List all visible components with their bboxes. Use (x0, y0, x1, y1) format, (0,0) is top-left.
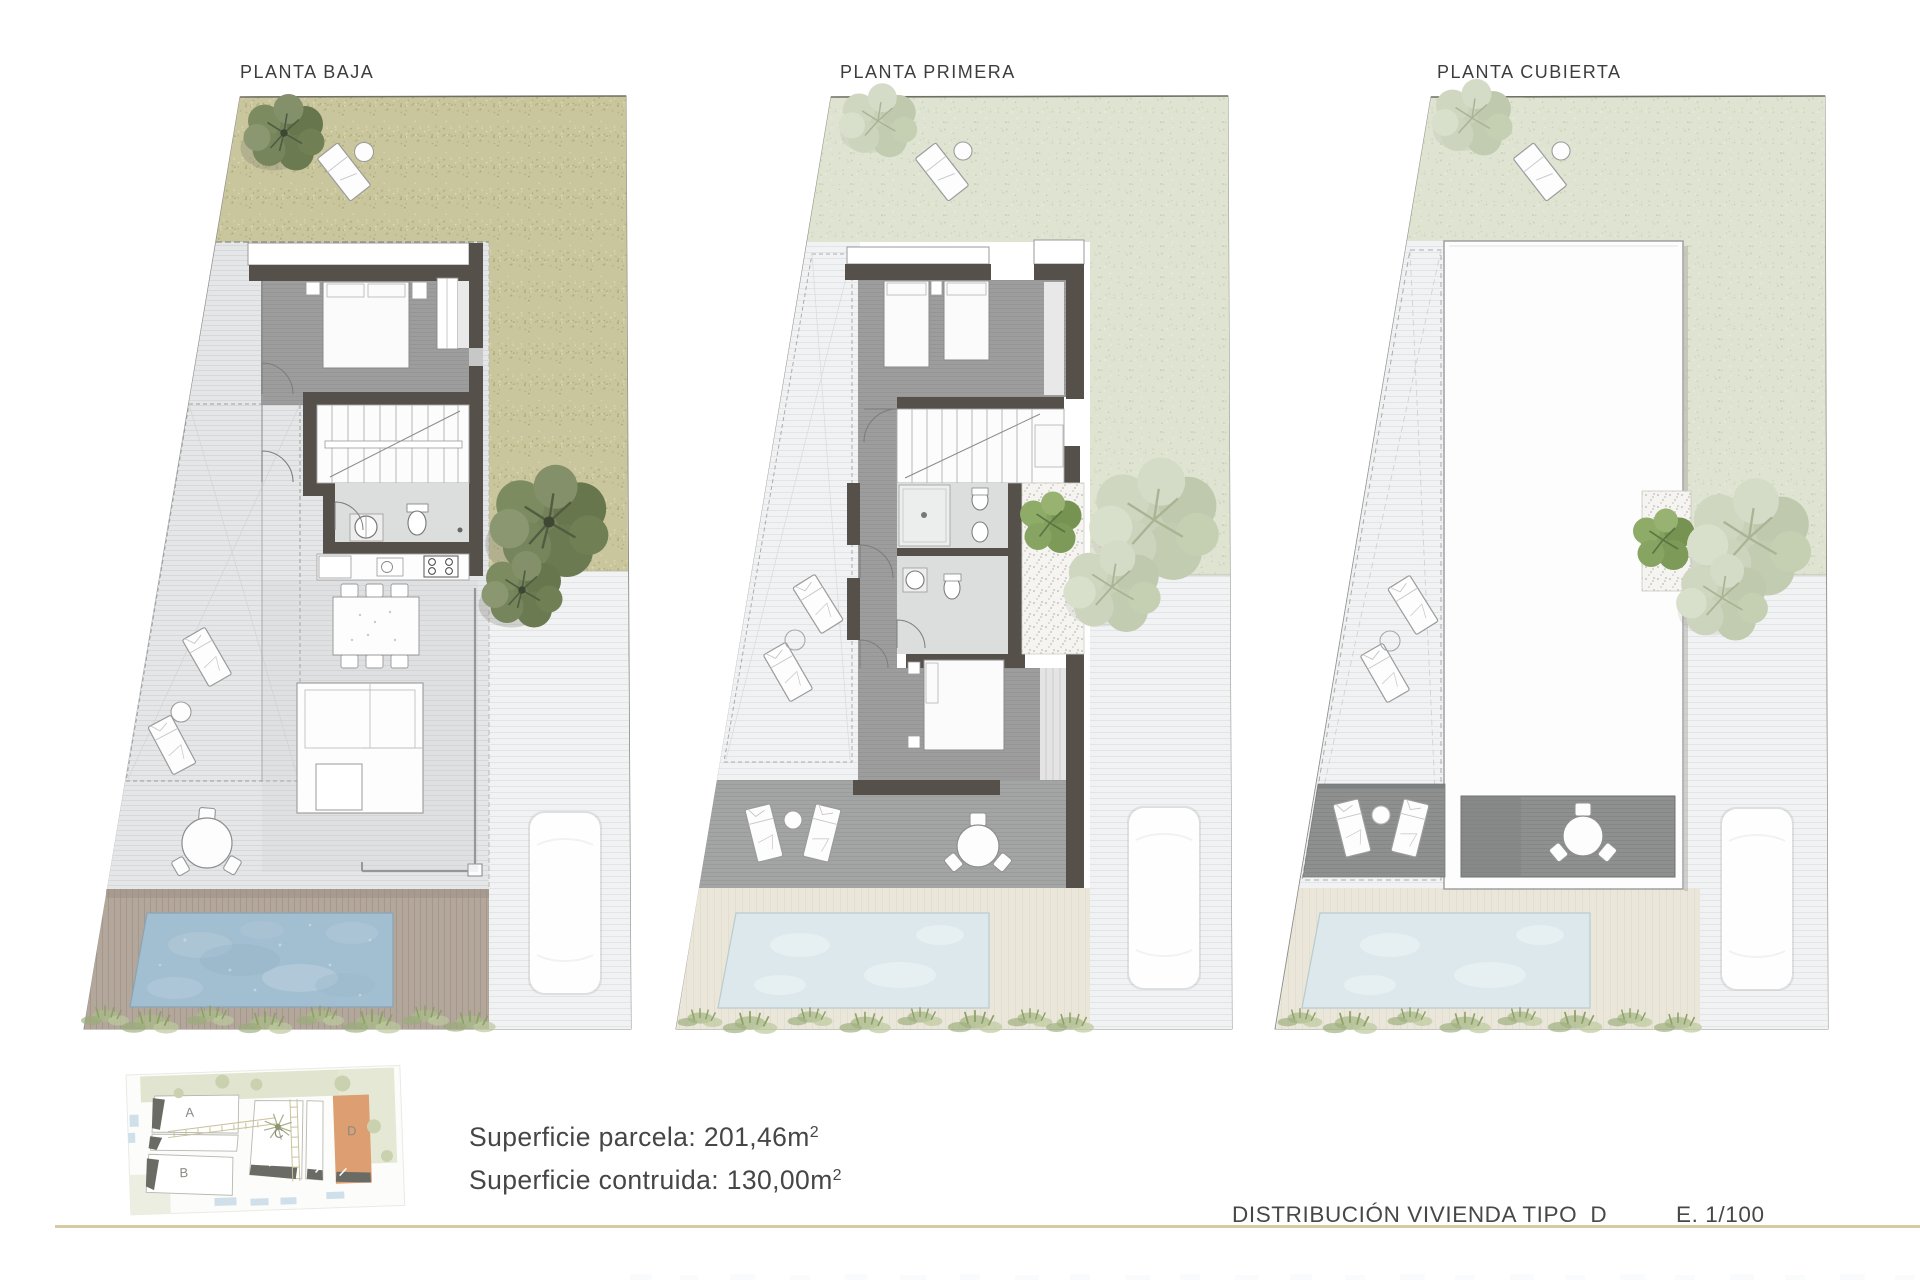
svg-text:D: D (347, 1123, 357, 1138)
svg-text:C: C (274, 1126, 284, 1141)
svg-text:Superficie contruida: 130,00m2: Superficie contruida: 130,00m2 (469, 1165, 842, 1195)
svg-text:A: A (185, 1105, 195, 1120)
svg-text:DISTRIBUCIÓN VIVIENDA TIPO_D: DISTRIBUCIÓN VIVIENDA TIPO_D (1232, 1202, 1607, 1227)
svg-text:PLANTA CUBIERTA: PLANTA CUBIERTA (1437, 62, 1622, 82)
svg-text:Superficie parcela: 201,46m2: Superficie parcela: 201,46m2 (469, 1122, 819, 1152)
svg-text:PLANTA PRIMERA: PLANTA PRIMERA (840, 62, 1016, 82)
svg-text:E. 1/100: E. 1/100 (1676, 1202, 1765, 1227)
svg-text:PLANTA BAJA: PLANTA BAJA (240, 62, 374, 82)
svg-text:B: B (179, 1165, 188, 1180)
